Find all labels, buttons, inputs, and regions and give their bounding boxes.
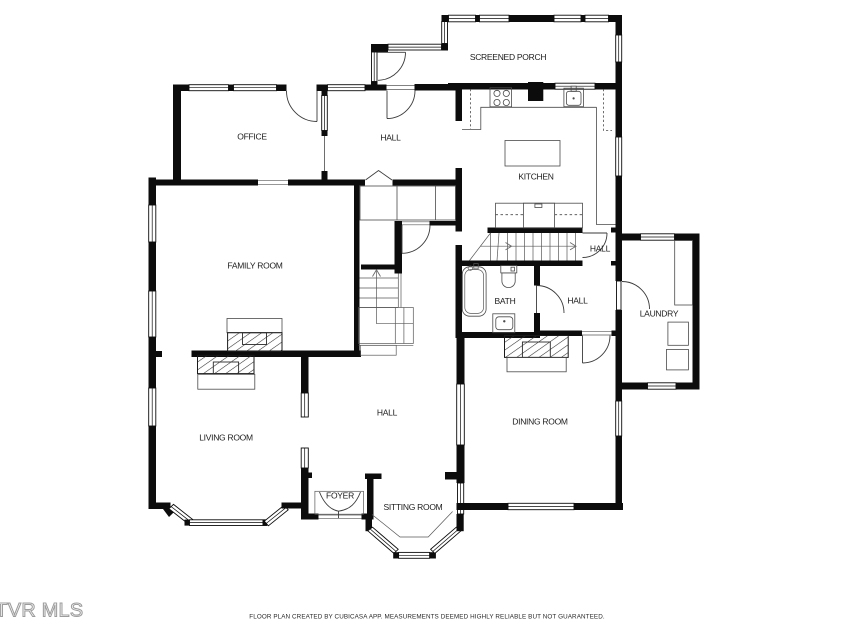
svg-text:FAMILY ROOM: FAMILY ROOM bbox=[227, 261, 282, 271]
svg-text:LAUNDRY: LAUNDRY bbox=[640, 309, 679, 319]
svg-text:BATH: BATH bbox=[495, 296, 516, 306]
svg-text:SITTING ROOM: SITTING ROOM bbox=[384, 502, 443, 512]
svg-text:DINING ROOM: DINING ROOM bbox=[512, 417, 568, 427]
svg-text:LIVING ROOM: LIVING ROOM bbox=[199, 433, 253, 443]
svg-text:KITCHEN: KITCHEN bbox=[518, 172, 553, 182]
svg-text:FOYER: FOYER bbox=[326, 491, 354, 501]
svg-text:HALL: HALL bbox=[380, 133, 401, 143]
svg-text:OFFICE: OFFICE bbox=[237, 132, 267, 142]
svg-text:TVR MLS: TVR MLS bbox=[0, 600, 83, 622]
svg-text:FLOOR PLAN CREATED BY CUBICASA: FLOOR PLAN CREATED BY CUBICASA APP. MEAS… bbox=[249, 614, 605, 621]
svg-text:SCREENED PORCH: SCREENED PORCH bbox=[470, 52, 547, 62]
svg-text:HALL: HALL bbox=[567, 296, 588, 306]
svg-text:HALL: HALL bbox=[590, 244, 611, 254]
svg-text:HALL: HALL bbox=[377, 408, 398, 418]
